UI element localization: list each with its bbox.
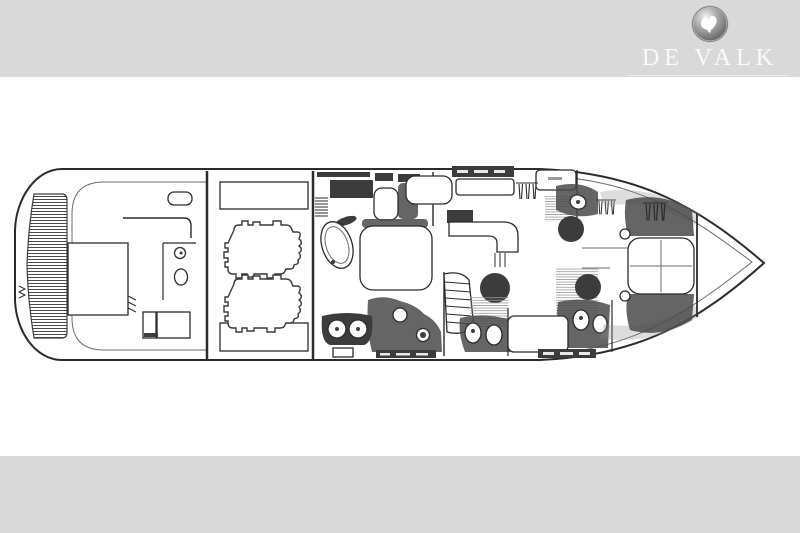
vip-wardrobe-starboard: [626, 294, 694, 333]
cockpit-benches: [143, 312, 190, 338]
starboard-engine: [224, 275, 301, 332]
galley-counter-top: [456, 179, 514, 195]
port-sunpad: [68, 243, 128, 315]
wet-bar: [168, 192, 192, 205]
second-head-basin: [575, 274, 601, 300]
footer-band: [0, 456, 800, 533]
starboard-label-bar: [538, 349, 596, 358]
lower-head-bidet: [486, 325, 502, 345]
master-bed: [360, 226, 432, 290]
listing-image: DE VALK: [0, 0, 800, 533]
port-fuel-tank: [220, 182, 308, 209]
swim-platform: [27, 194, 67, 338]
port-engine: [224, 221, 301, 278]
salon-settee: [406, 176, 452, 204]
dressing-seat: [374, 188, 398, 220]
yacht-deck-plan: [0, 0, 800, 533]
guest-head-basin: [558, 216, 584, 242]
guest-berth-starboard: [508, 316, 568, 352]
galley-label-bar: [452, 166, 514, 177]
companionway-ladder: [315, 198, 328, 216]
locker-label-bar: [376, 350, 436, 358]
day-head-toilet: [175, 269, 188, 285]
master-cabinet: [330, 180, 373, 198]
